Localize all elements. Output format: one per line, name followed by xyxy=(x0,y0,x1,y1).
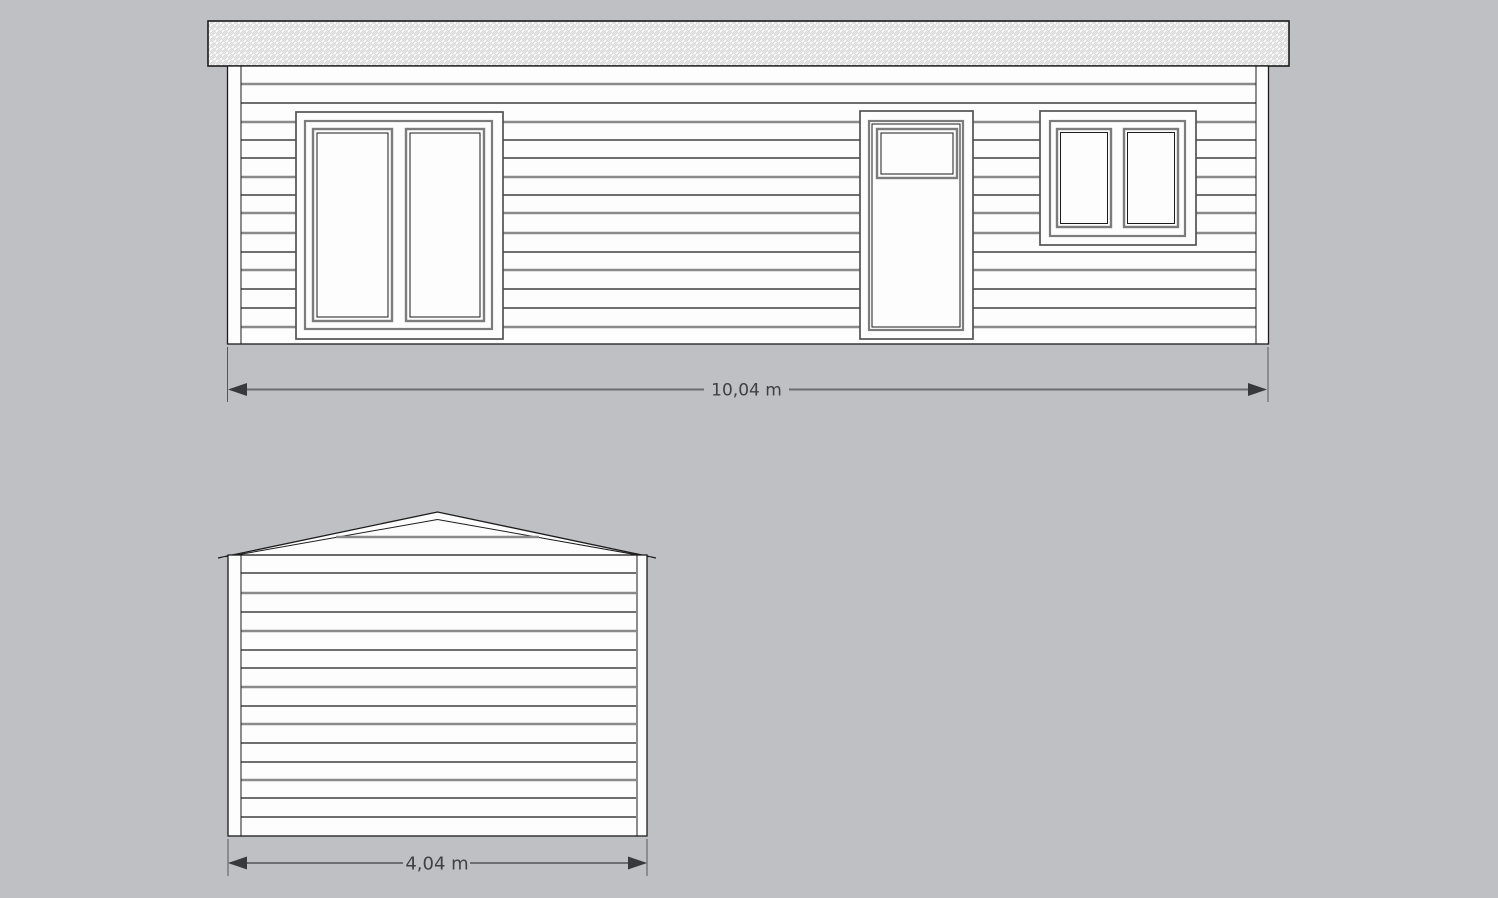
gable-dim-arrow-left-icon xyxy=(228,857,247,870)
gable-wall xyxy=(228,555,647,836)
entrance-door xyxy=(860,111,973,339)
double-window-right xyxy=(1040,111,1196,245)
double-window-left-casing xyxy=(296,112,503,339)
front-dimension-label: 10,04 m xyxy=(711,381,782,401)
front-dim-arrow-right-icon xyxy=(1248,383,1267,396)
gable-width-dimension: 4,04 m xyxy=(228,839,647,876)
gable-elevation: 4,04 m xyxy=(218,512,656,876)
front-elevation: 10,04 m xyxy=(208,21,1289,402)
double-window-right-casing xyxy=(1040,111,1196,245)
elevation-drawing: 10,04 m xyxy=(0,0,1498,898)
front-width-dimension: 10,04 m xyxy=(228,347,1269,402)
roof-fascia xyxy=(208,21,1289,66)
gable-dimension-label: 4,04 m xyxy=(405,854,468,875)
double-window-left xyxy=(296,112,503,339)
gable-dim-arrow-right-icon xyxy=(628,857,647,870)
front-dim-arrow-left-icon xyxy=(228,383,247,396)
gable-roof-fill xyxy=(218,512,656,558)
drawing-canvas: 10,04 m xyxy=(0,0,1498,898)
